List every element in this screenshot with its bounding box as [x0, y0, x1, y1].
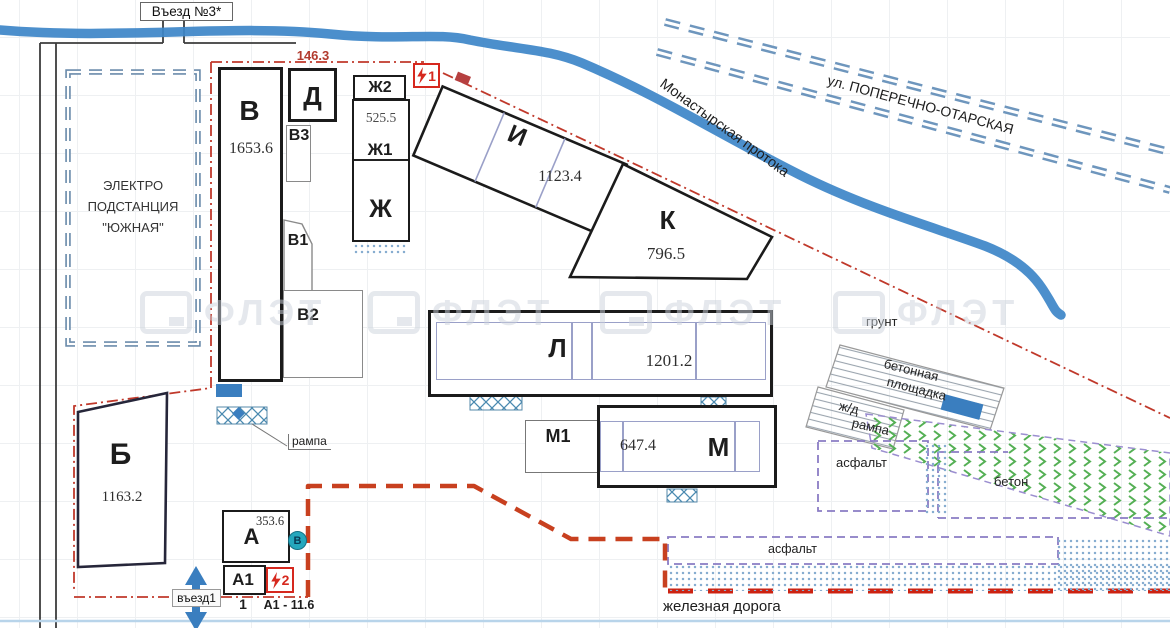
- label-zh1: Ж1: [368, 140, 393, 160]
- entrance1-label: въезд1: [172, 589, 221, 607]
- building-v2: [283, 290, 363, 378]
- dotted-area-right: [1056, 538, 1170, 591]
- railway-label: железная дорога: [663, 598, 781, 615]
- building-l-div1: [571, 322, 573, 380]
- watermark-icon: [140, 291, 192, 334]
- label-v1: В1: [288, 232, 308, 250]
- blue-block-v: [216, 384, 242, 397]
- building-l-div3: [695, 322, 697, 380]
- area-k: 796.5: [647, 244, 685, 264]
- label-m: М: [708, 432, 731, 463]
- area-note-a1: А1 - 11.6: [264, 598, 315, 612]
- building-l-div2: [591, 322, 593, 380]
- area-a: 353.6: [256, 514, 284, 529]
- lightning-icon: [271, 572, 281, 589]
- watermark-text: ФЛЭТ: [897, 292, 1019, 334]
- area-zh1: 525.5: [366, 110, 396, 126]
- entrance3-label: Въезд №3*: [140, 2, 233, 21]
- dotted-patch-concrete: [924, 443, 948, 515]
- label-v: В: [239, 95, 260, 127]
- label-v3: В3: [289, 127, 309, 145]
- pad-blue-block: [941, 394, 984, 420]
- label-k: К: [660, 205, 677, 236]
- power-marker-number: 1: [428, 69, 436, 83]
- ramp-label: рампа: [288, 434, 331, 450]
- power-marker-1: 1: [413, 63, 440, 88]
- boundary-length: 146.3: [297, 48, 330, 63]
- building-i-shape: [413, 86, 626, 233]
- label-zh: Ж: [369, 195, 393, 224]
- label-i: И: [503, 120, 531, 154]
- area-b: 1163.2: [102, 489, 143, 506]
- area-m: 647.4: [620, 437, 656, 455]
- label-a1: А1: [232, 570, 254, 590]
- ramp-marker-dot: [232, 407, 245, 420]
- watermark-icon: [368, 291, 420, 334]
- boundary-thick-dash: [308, 486, 665, 597]
- substation-line3: "ЮЖНАЯ": [70, 218, 196, 239]
- site-plan: 1 2 В Въезд №3* въезд1 В 1653.6 Д В3 В1 …: [0, 0, 1170, 628]
- point1-label: 1: [239, 596, 247, 612]
- river-path: [0, 30, 1061, 315]
- watermark: ФЛЭТ: [833, 291, 1019, 334]
- asphalt-strip-label: асфальт: [768, 542, 817, 556]
- area-l: 1201.2: [646, 351, 693, 371]
- power-marker-2: 2: [266, 567, 294, 593]
- street-label: ул. ПОПЕРЕЧНО-ОТАРСКАЯ: [826, 72, 1015, 137]
- point-marker-b: В: [288, 531, 307, 550]
- building-b-shape: [78, 393, 167, 567]
- ramp-leader-line: [252, 424, 287, 446]
- river-label: Монастырская протока: [657, 76, 792, 180]
- dotted-fringe-zh: [353, 243, 408, 256]
- building-l-inner: [436, 322, 766, 380]
- power-marker-number: 2: [282, 573, 290, 587]
- lightning-icon: [417, 67, 427, 84]
- area-i: 1123.4: [538, 168, 581, 186]
- building-v1-shape: [284, 220, 312, 291]
- label-m1: М1: [545, 426, 570, 447]
- ground-label: грунт: [866, 314, 897, 329]
- boundary-tick: [455, 72, 471, 86]
- area-v: 1653.6: [229, 140, 273, 158]
- label-d: Д: [303, 81, 323, 112]
- label-v2: В2: [297, 305, 319, 325]
- label-b: Б: [110, 438, 133, 472]
- label-l: Л: [548, 333, 567, 364]
- substation-line2: ПОДСТАНЦИЯ: [70, 197, 196, 218]
- asphalt-box-label: асфальт: [836, 455, 887, 470]
- substation-line1: ЭЛЕКТРО: [70, 176, 196, 197]
- rail-ramp-label1: ж/д: [838, 398, 861, 417]
- substation-title: ЭЛЕКТРО ПОДСТАНЦИЯ "ЮЖНАЯ": [70, 176, 196, 238]
- concrete-label: бетон: [994, 474, 1028, 489]
- building-m-div2: [734, 421, 736, 472]
- label-zh2: Ж2: [368, 79, 391, 97]
- rail-ramp-label2: рампа: [851, 415, 891, 438]
